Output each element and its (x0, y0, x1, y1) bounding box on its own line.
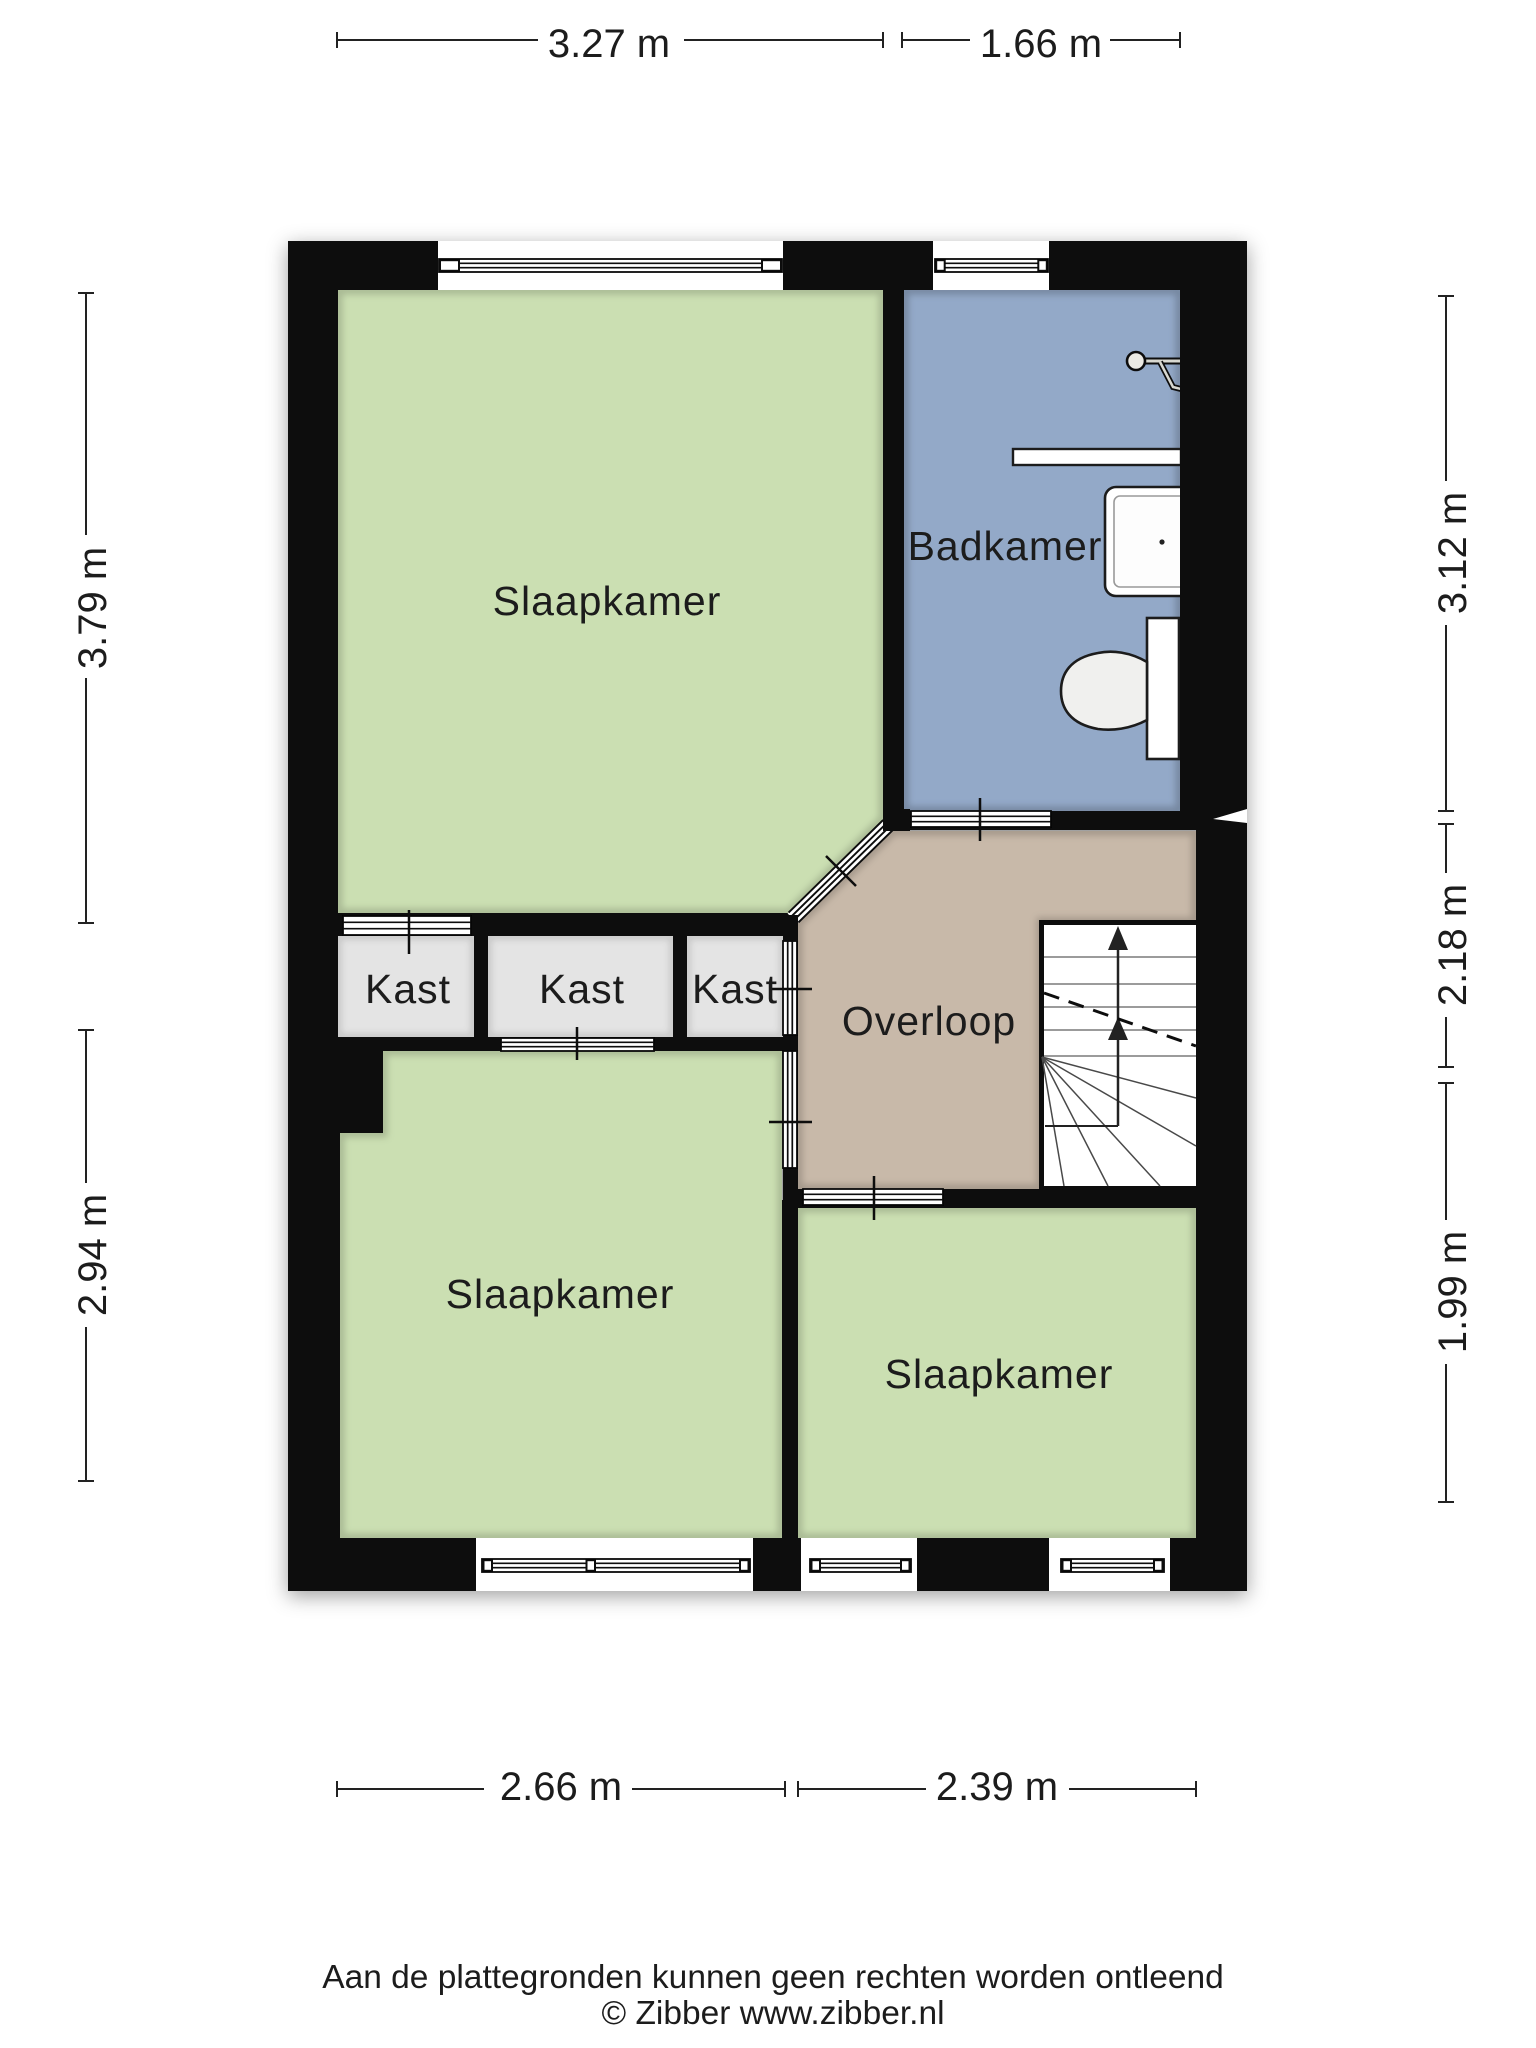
svg-text:1.99 m: 1.99 m (1431, 1231, 1475, 1353)
svg-text:Kast: Kast (692, 966, 778, 1012)
svg-text:© Zibber www.zibber.nl: © Zibber www.zibber.nl (601, 1995, 944, 2032)
svg-text:2.66 m: 2.66 m (500, 1765, 622, 1809)
svg-text:Kast: Kast (539, 966, 625, 1012)
svg-text:Slaapkamer: Slaapkamer (885, 1351, 1114, 1397)
svg-text:3.12 m: 3.12 m (1431, 492, 1475, 614)
svg-text:Aan de plattegronden kunnen ge: Aan de plattegronden kunnen geen rechten… (322, 1959, 1224, 1996)
svg-text:2.94 m: 2.94 m (71, 1194, 115, 1316)
svg-text:Overloop: Overloop (842, 998, 1016, 1044)
svg-text:2.18 m: 2.18 m (1431, 884, 1475, 1006)
svg-text:2.39 m: 2.39 m (936, 1765, 1058, 1809)
svg-text:Slaapkamer: Slaapkamer (446, 1271, 675, 1317)
svg-text:1.66 m: 1.66 m (980, 22, 1102, 66)
svg-text:3.27 m: 3.27 m (548, 22, 670, 66)
svg-text:Badkamer: Badkamer (908, 523, 1103, 569)
svg-text:Slaapkamer: Slaapkamer (493, 578, 722, 624)
svg-text:3.79 m: 3.79 m (71, 547, 115, 669)
svg-text:Kast: Kast (365, 966, 451, 1012)
